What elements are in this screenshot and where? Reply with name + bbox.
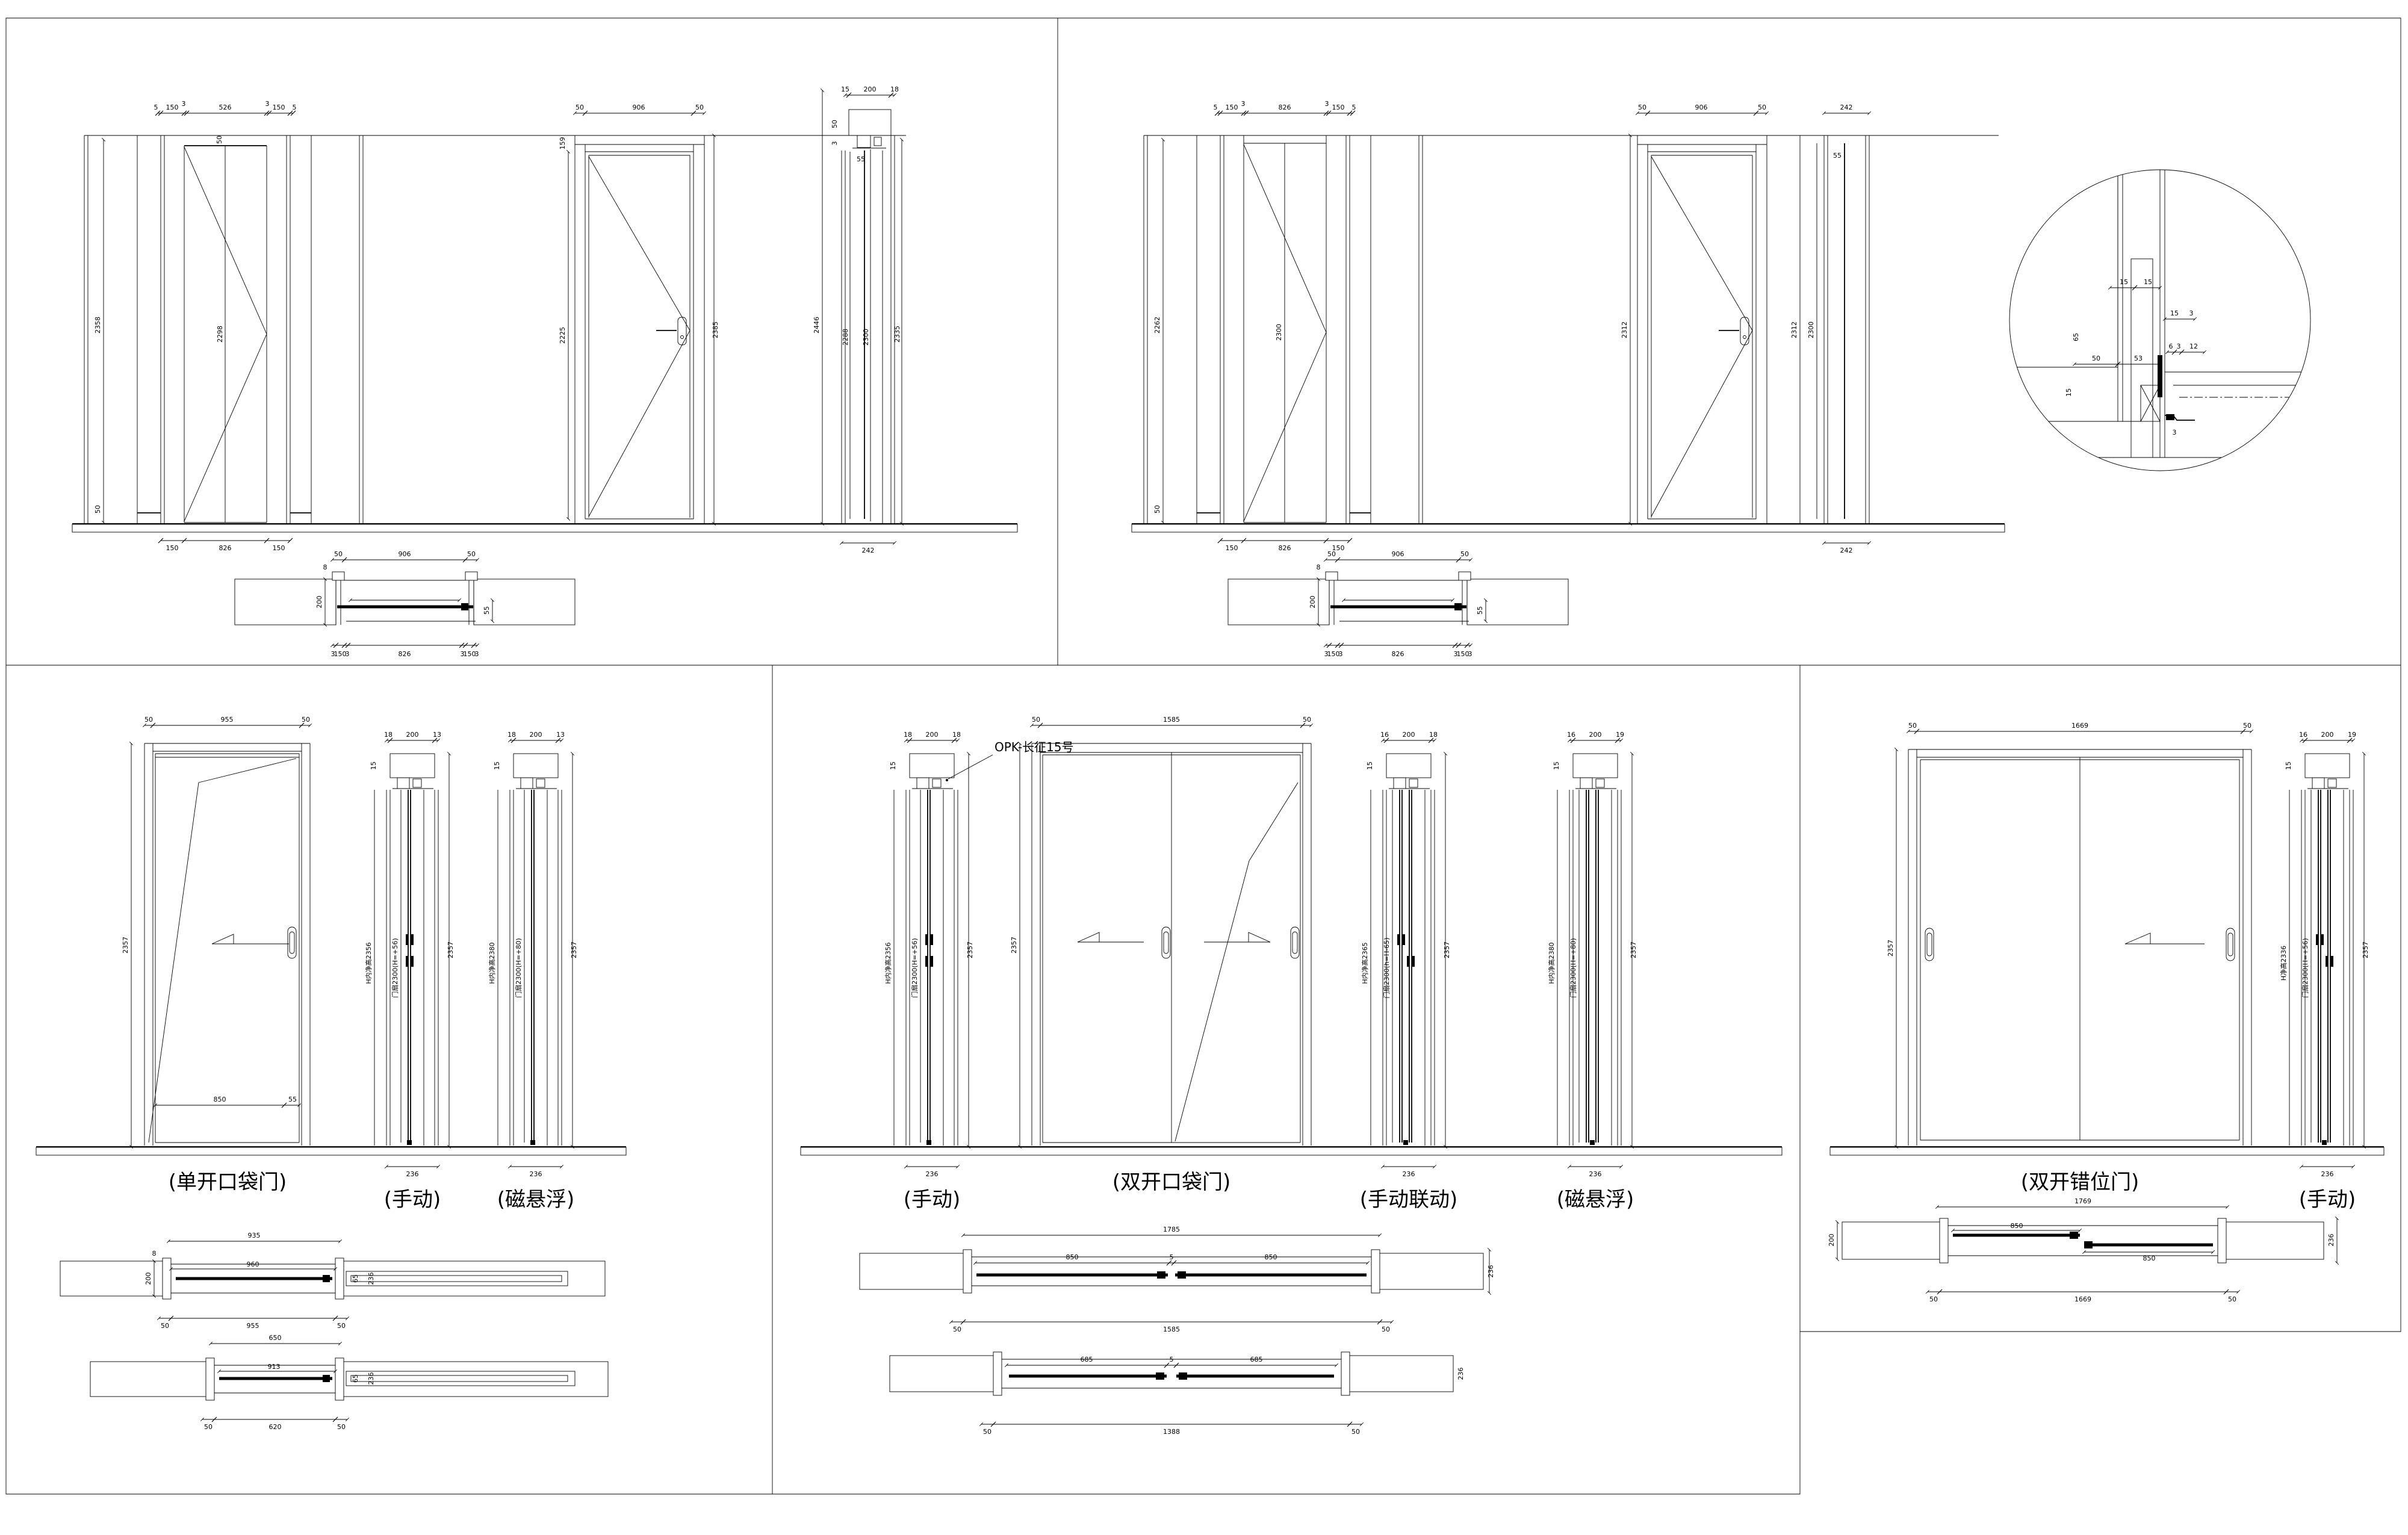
dim-text: 15	[841, 85, 849, 93]
dim-text: 8	[323, 563, 327, 571]
figure-label: (手动联动)	[1360, 1188, 1458, 1212]
concrete-wall-hatch	[2008, 169, 2118, 367]
dim-text: H内净高2356	[364, 942, 373, 984]
concrete-lintel	[1386, 754, 1431, 778]
dim-text: 906	[633, 104, 645, 111]
figure-label: (双开错位门)	[2021, 1170, 2140, 1194]
wall-hatch-left	[1842, 1222, 1944, 1259]
dim-text: 236	[1589, 1170, 1602, 1178]
concrete-lintel	[910, 754, 954, 778]
concrete-lintel	[849, 110, 891, 135]
dim-text: 1785	[1163, 1226, 1180, 1233]
dim-text: 150	[464, 650, 476, 658]
bm-track-section-linked: 16 200 18 15 H内净高2365 门扇2300(h=H-65) 235…	[1360, 731, 1458, 1212]
dim-text: 242	[1840, 104, 1853, 111]
dim-text: 2298	[216, 326, 224, 343]
dim-text: 15	[889, 761, 897, 770]
dim-text: 826	[219, 544, 232, 552]
dim-text: 150	[166, 104, 179, 111]
dim-text: 242	[862, 547, 875, 554]
dim-text: 50	[1303, 716, 1311, 724]
dim-text: 2446	[813, 317, 821, 333]
dim-text: 18	[1429, 731, 1438, 739]
dim-text: 1585	[1163, 716, 1180, 724]
dim-text: 1769	[2074, 1197, 2091, 1205]
dim-text: 3	[1325, 100, 1329, 108]
slide-direction-arrow	[212, 934, 234, 944]
bl-plan-detail-2: 650 913 50 620 50 65 236	[90, 1334, 608, 1431]
dim-text: 200	[1828, 1234, 1835, 1247]
dim-text: 门扇2300(H=+80)	[514, 938, 523, 997]
dim-text: 15	[2170, 309, 2179, 317]
dim-text: 2357	[1010, 937, 1018, 954]
dim-text: H内净高2356	[884, 942, 892, 984]
cad-door-detail-sheet: 2358 50 2298 50 5 150 3 526 3 150 5 150 …	[0, 0, 2408, 1535]
dim-text: 16	[1380, 731, 1389, 739]
dim-text: 2312	[1790, 321, 1798, 338]
callout-leader	[948, 755, 993, 779]
dim-text: 2262	[1153, 317, 1161, 333]
dim-text: 50	[953, 1326, 961, 1333]
dim-text: 2300	[862, 329, 870, 346]
dim-text: 50	[1758, 104, 1766, 111]
dim-text: 955	[247, 1322, 259, 1330]
br-ground-hatch	[1830, 1147, 2384, 1155]
track-callout-text: OPK-长征15号	[995, 740, 1073, 754]
dim-text: 50	[576, 104, 584, 111]
dim-text: 3	[2177, 343, 2181, 350]
dim-text: 50	[1460, 550, 1469, 558]
dim-text: 18	[952, 731, 961, 739]
dim-text: 200	[315, 596, 323, 609]
panel-top-left: 2358 50 2298 50 5 150 3 526 3 150 5 150 …	[72, 85, 1017, 658]
dim-text: 236	[1487, 1265, 1495, 1278]
dim-text: 2357	[1630, 941, 1637, 958]
dim-text: 2225	[559, 327, 566, 344]
dim-text: 5	[154, 104, 158, 111]
dim-text: 826	[1279, 544, 1291, 552]
slide-direction-arrow-right	[1249, 932, 1270, 942]
tl-swing-door-elevation: 50 906 50 159 2225 2385	[559, 104, 719, 524]
dim-text: 2288	[842, 329, 849, 346]
dim-text: 150	[1327, 650, 1340, 658]
dim-text: 960	[247, 1261, 259, 1268]
dim-text: 685	[1081, 1356, 1093, 1363]
dim-text: 门扇2300(H=+56)	[910, 938, 919, 997]
figure-label: (手动)	[2299, 1188, 2356, 1212]
dim-text: 150	[334, 650, 347, 658]
dim-text: 门扇2300(H=+80)	[1569, 938, 1577, 997]
slide-direction-arrow-left	[1078, 932, 1099, 942]
wall-hatch-left	[860, 1253, 968, 1289]
figure-label: (单开口袋门)	[169, 1170, 287, 1194]
dim-text: 236	[367, 1273, 375, 1285]
figure-label: (磁悬浮)	[497, 1188, 575, 1212]
dim-text: 236	[367, 1372, 375, 1385]
dim-text: 50	[1929, 1295, 1938, 1303]
dim-text: 906	[1695, 104, 1708, 111]
dim-text: 2357	[122, 937, 129, 954]
dim-text: 15	[2285, 761, 2292, 770]
dim-text: 906	[1392, 550, 1404, 558]
tr-swing-door-elevation: 50 906 50 2312	[1621, 104, 1767, 524]
bm-ground-hatch	[801, 1147, 1782, 1155]
dim-text: H净高2336	[2279, 946, 2288, 981]
dim-text: 50	[302, 716, 310, 724]
wall-hatch-right	[2221, 1222, 2324, 1259]
dim-text: 50	[1153, 505, 1161, 513]
dim-text: 5	[1214, 104, 1218, 111]
dim-text: 150	[1332, 104, 1345, 111]
concrete-lintel	[514, 754, 558, 778]
dim-text: 242	[1840, 547, 1853, 554]
dim-text: 236	[1403, 1170, 1415, 1178]
dim-text: 12	[2189, 343, 2198, 350]
dim-text: H内净高2380	[1547, 942, 1556, 984]
bm-double-pocket-door-elevation: 50 1585 50 2357 (双开口袋门)	[1010, 716, 1311, 1194]
dim-text: 2357	[966, 941, 974, 958]
figure-label: (手动)	[904, 1188, 961, 1212]
dim-text: 2300	[1807, 321, 1815, 338]
dim-text: 19	[1616, 731, 1624, 739]
wall-hatch-right	[1467, 579, 1568, 625]
dim-text: 50	[1382, 1326, 1390, 1333]
dim-text: 15	[370, 761, 377, 770]
dim-text: 50	[337, 1423, 346, 1431]
dim-text: 50	[2092, 355, 2100, 362]
dim-text: 2357	[570, 941, 578, 958]
dim-text: 15	[2065, 388, 2073, 397]
br-plan-detail: 1769 850 850 50 1669 50 200 236	[1828, 1197, 2337, 1303]
dim-text: 15	[2120, 278, 2128, 286]
dim-text: 236	[406, 1170, 419, 1178]
dim-text: 955	[221, 716, 234, 724]
panel-bottom-right: 50 1669 50 2357 (双开错位门) 16 200 19	[1828, 722, 2384, 1303]
dim-text: 3	[265, 100, 270, 108]
dim-text: 236	[926, 1170, 939, 1178]
dim-text: 3	[831, 141, 839, 146]
bm-track-section-maglev: 16 200 19 15 H内净高2380 门扇2300(H=+80) 2357…	[1547, 731, 1637, 1212]
dim-text: 50	[1351, 1428, 1360, 1436]
dim-text: 850	[1265, 1253, 1277, 1261]
dim-text: 826	[399, 650, 411, 658]
dim-text: 5	[293, 104, 297, 111]
dim-text: 2357	[1887, 940, 1894, 957]
tr-jamb-section: 242 55 2312 2300 242	[1790, 104, 1869, 554]
dim-text: 3	[2173, 429, 2177, 436]
drawing-canvas: 2358 50 2298 50 5 150 3 526 3 150 5 150 …	[0, 0, 2408, 1535]
concrete-lintel	[2305, 754, 2350, 778]
dim-text: 150	[1457, 650, 1469, 658]
dim-text: 55	[483, 606, 491, 615]
panel-top-right: 2262 50 2300 5 150 3 826 3 150 5 150 826…	[1132, 100, 2310, 658]
dim-text: 200	[1309, 596, 1317, 609]
figure-label: (双开口袋门)	[1112, 1170, 1231, 1194]
dim-text: 15	[1366, 761, 1374, 770]
dim-text: 526	[219, 104, 232, 111]
dim-text: 3	[475, 650, 479, 658]
dim-text: 826	[1392, 650, 1404, 658]
dim-text: 15	[2144, 278, 2152, 286]
figure-label: (磁悬浮)	[1557, 1188, 1634, 1212]
bl-ground-hatch	[36, 1147, 626, 1155]
dim-text: 236	[1457, 1368, 1465, 1380]
dim-text: 935	[248, 1232, 261, 1239]
dim-text: 50	[334, 550, 343, 558]
figure-label: (手动)	[384, 1188, 441, 1212]
dim-text: 5	[1170, 1356, 1174, 1363]
dim-text: 150	[273, 104, 285, 111]
dim-text: 55	[1476, 606, 1484, 615]
dim-text: H内净高2365	[1361, 942, 1369, 984]
dim-text: 50	[1908, 722, 1917, 730]
dim-text: 15	[1553, 761, 1560, 770]
tl-ground-hatch	[72, 524, 1017, 532]
dim-text: 826	[1279, 104, 1291, 111]
dim-text: 65	[352, 1274, 359, 1283]
dim-text: 2357	[1443, 941, 1451, 958]
dim-text: 53	[2134, 355, 2143, 362]
dim-text: 200	[1403, 731, 1415, 739]
tl-pocket-door-elevation: 2358 50 2298 50 5 150 3 526 3 150 5 150 …	[84, 100, 363, 552]
dim-text: 55	[1833, 152, 1842, 160]
tr-plan-detail: 50 906 50 3 150 3 826 3 150 3 200 8 55	[1228, 550, 1568, 658]
wall-hatch-left	[60, 1261, 169, 1296]
dim-text: 236	[2321, 1170, 2334, 1178]
concrete-lintel	[1573, 754, 1618, 778]
dim-text: 906	[399, 550, 411, 558]
dim-text: 50	[2228, 1295, 2236, 1303]
dim-text: 150	[273, 544, 285, 552]
dim-text: 3	[182, 100, 186, 108]
dim-text: 2335	[893, 326, 901, 343]
dim-text: 50	[144, 716, 153, 724]
bm-plan-detail-1: 1785 850 5 850 50 1585 50 236	[860, 1226, 1495, 1333]
dim-text: 门扇2300(H=+56)	[391, 938, 399, 997]
dim-text: 1669	[2071, 722, 2088, 730]
wall-hatch-left	[90, 1362, 211, 1397]
dim-text: 3	[1241, 100, 1246, 108]
dim-text: 50	[695, 104, 704, 111]
dim-text: 3	[346, 650, 350, 658]
dim-text: 2385	[712, 321, 719, 338]
dim-text: 850	[214, 1096, 226, 1103]
dim-text: 1388	[1163, 1428, 1180, 1436]
dim-text: 1669	[2074, 1295, 2091, 1303]
panel-bottom-middle: OPK-长征15号 18 200 18 15 H内净高2356 门扇2300(H…	[801, 716, 1782, 1436]
dim-text: 16	[2299, 731, 2307, 739]
dim-text: 19	[2348, 731, 2356, 739]
dim-text: 913	[268, 1363, 281, 1371]
door-handle-plate	[1740, 317, 1749, 345]
dim-text: 1585	[1163, 1326, 1180, 1333]
dim-text: 18	[384, 731, 393, 739]
dim-text: 18	[507, 731, 516, 739]
wall-hatch-right	[1375, 1253, 1483, 1289]
dim-text: 50	[161, 1322, 169, 1330]
dim-text: 2357	[447, 941, 455, 958]
dim-text: 200	[926, 731, 939, 739]
wall-hatch-left	[890, 1356, 998, 1392]
panel-bottom-left: 50 955 50 2357 850 55 (单开口袋门) 18 200 13	[36, 716, 626, 1431]
tr-detail-circle: 15 15 15 3 50 53 6 3 12 65 15 3	[2008, 169, 2310, 471]
dim-text: 50	[204, 1423, 213, 1431]
br-track-section-manual: 16 200 19 15 H净高2336 门扇2300(H=+56) 2357 …	[2279, 731, 2369, 1212]
dim-text: 2358	[94, 317, 102, 333]
bm-track-section-manual: 18 200 18 15 H内净高2356 门扇2300(H=+56) 2357…	[884, 731, 974, 1212]
dim-text: 200	[530, 731, 542, 739]
dim-text: 15	[493, 761, 501, 770]
dim-text: 18	[890, 85, 899, 93]
dim-text: 2357	[2362, 941, 2369, 958]
dim-text: 18	[904, 731, 912, 739]
br-sliding-door-elevation: 50 1669 50 2357 (双开错位门)	[1887, 722, 2251, 1194]
dim-text: 50	[216, 135, 223, 144]
dim-text: 200	[144, 1273, 152, 1285]
dim-text: 50	[94, 505, 102, 513]
dim-text: 65	[352, 1374, 359, 1383]
slide-direction-arrow	[2125, 933, 2150, 944]
dim-text: 8	[1317, 563, 1321, 571]
dim-text: 门扇2300(h=H-65)	[1382, 937, 1391, 998]
tr-ground-hatch	[1132, 524, 2005, 532]
dim-text: 50	[1638, 104, 1646, 111]
dim-text: 685	[1250, 1356, 1263, 1363]
dim-text: 620	[269, 1423, 282, 1431]
dim-text: 50	[337, 1322, 346, 1330]
dim-text: H内净高2380	[488, 942, 496, 984]
dim-text: 236	[530, 1170, 542, 1178]
dim-text: 150	[1226, 104, 1238, 111]
dim-text: 8	[152, 1250, 157, 1257]
dim-text: 150	[166, 544, 179, 552]
dim-text: 150	[1226, 544, 1238, 552]
bl-track-section-manual: 18 200 13 15 H内净高2356 门扇2300(H=+56) 2357…	[364, 731, 455, 1212]
dim-text: 50	[467, 550, 476, 558]
dim-text: 13	[556, 731, 565, 739]
dim-text: 50	[2243, 722, 2251, 730]
dim-text: 50	[1327, 550, 1336, 558]
dim-text: 5	[1170, 1253, 1174, 1261]
dim-text: 200	[1589, 731, 1602, 739]
tl-plan-detail: 50 906 50 3 150 3 826 3 150 3 200 8 55	[235, 550, 575, 658]
dim-text: 3	[1339, 650, 1343, 658]
dim-text: 50	[1032, 716, 1040, 724]
dim-text: 65	[2072, 333, 2080, 341]
door-handle-plate	[678, 317, 686, 345]
bl-plan-detail-1: 935 960 50 955 50 200 8 65 236	[60, 1232, 605, 1330]
dim-text: 3	[1468, 650, 1472, 658]
dim-text: 850	[1066, 1253, 1079, 1261]
dim-text: 6	[2169, 343, 2173, 350]
dim-text: 50	[983, 1428, 991, 1436]
tl-jamb-section: 15 200 18 50 3 55 2446 2288 2300 2335 24…	[813, 85, 902, 554]
dim-text: 236	[2327, 1234, 2335, 1247]
dim-text: 5	[1352, 104, 1356, 111]
bl-track-section-maglev: 18 200 13 15 H内净高2380 门扇2300(H=+80) 2357…	[488, 731, 578, 1212]
dim-text: 159	[559, 137, 566, 150]
tr-pocket-door-elevation: 2262 50 2300 5 150 3 826 3 150 5 150 826…	[1144, 100, 1423, 552]
dim-text: 200	[406, 731, 419, 739]
dim-text: 200	[2321, 731, 2334, 739]
wall-hatch-right	[1345, 1356, 1453, 1392]
dim-text: 650	[269, 1334, 282, 1342]
dim-text: 3	[2189, 309, 2194, 317]
seal-strip	[2158, 355, 2162, 397]
dim-text: 门扇2300(H=+56)	[2301, 938, 2309, 997]
dim-text: 850	[2011, 1222, 2023, 1230]
bm-plan-detail-2: 685 5 685 50 1388 50 236	[890, 1352, 1465, 1436]
dim-text: 13	[433, 731, 441, 739]
wall-hatch-right	[474, 579, 575, 625]
dim-text: 2312	[1621, 321, 1628, 338]
dim-text: 200	[864, 85, 877, 93]
dim-text: 50	[831, 120, 839, 128]
dim-text: 55	[288, 1096, 297, 1103]
dim-text: 16	[1567, 731, 1575, 739]
bl-pocket-door-elevation: 50 955 50 2357 850 55 (单开口袋门)	[122, 716, 310, 1194]
dim-text: 55	[857, 155, 865, 163]
dim-text: 2300	[1275, 324, 1283, 341]
concrete-lintel	[390, 754, 435, 778]
